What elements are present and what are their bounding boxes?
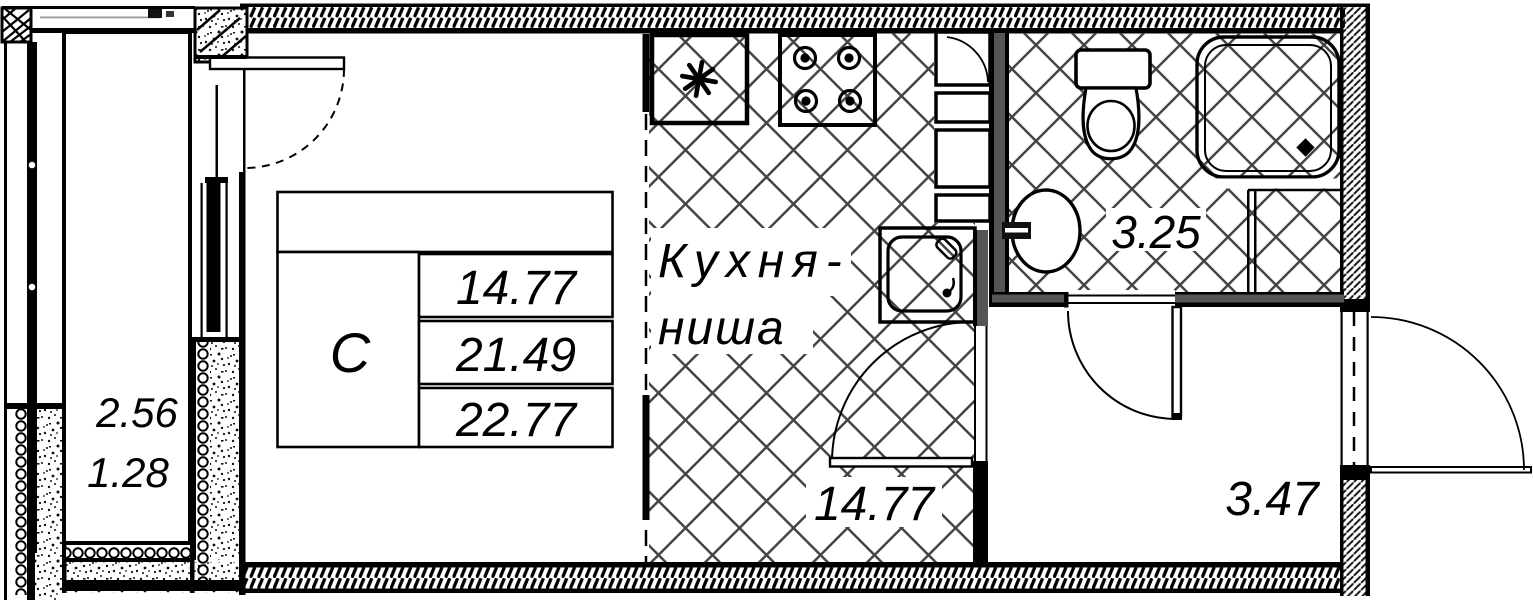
svg-text:ниша: ниша [658, 302, 786, 355]
svg-text:14.77: 14.77 [814, 478, 936, 531]
svg-text:14.77: 14.77 [456, 262, 578, 315]
svg-text:3.47: 3.47 [1225, 473, 1321, 526]
svg-text:2.56: 2.56 [95, 389, 178, 436]
svg-text:С: С [330, 321, 371, 384]
svg-text:3.25: 3.25 [1111, 206, 1201, 258]
svg-text:21.49: 21.49 [455, 329, 576, 382]
svg-text:22.77: 22.77 [455, 394, 578, 447]
svg-text:Кухня-: Кухня- [658, 235, 850, 288]
svg-text:1.28: 1.28 [87, 449, 169, 496]
